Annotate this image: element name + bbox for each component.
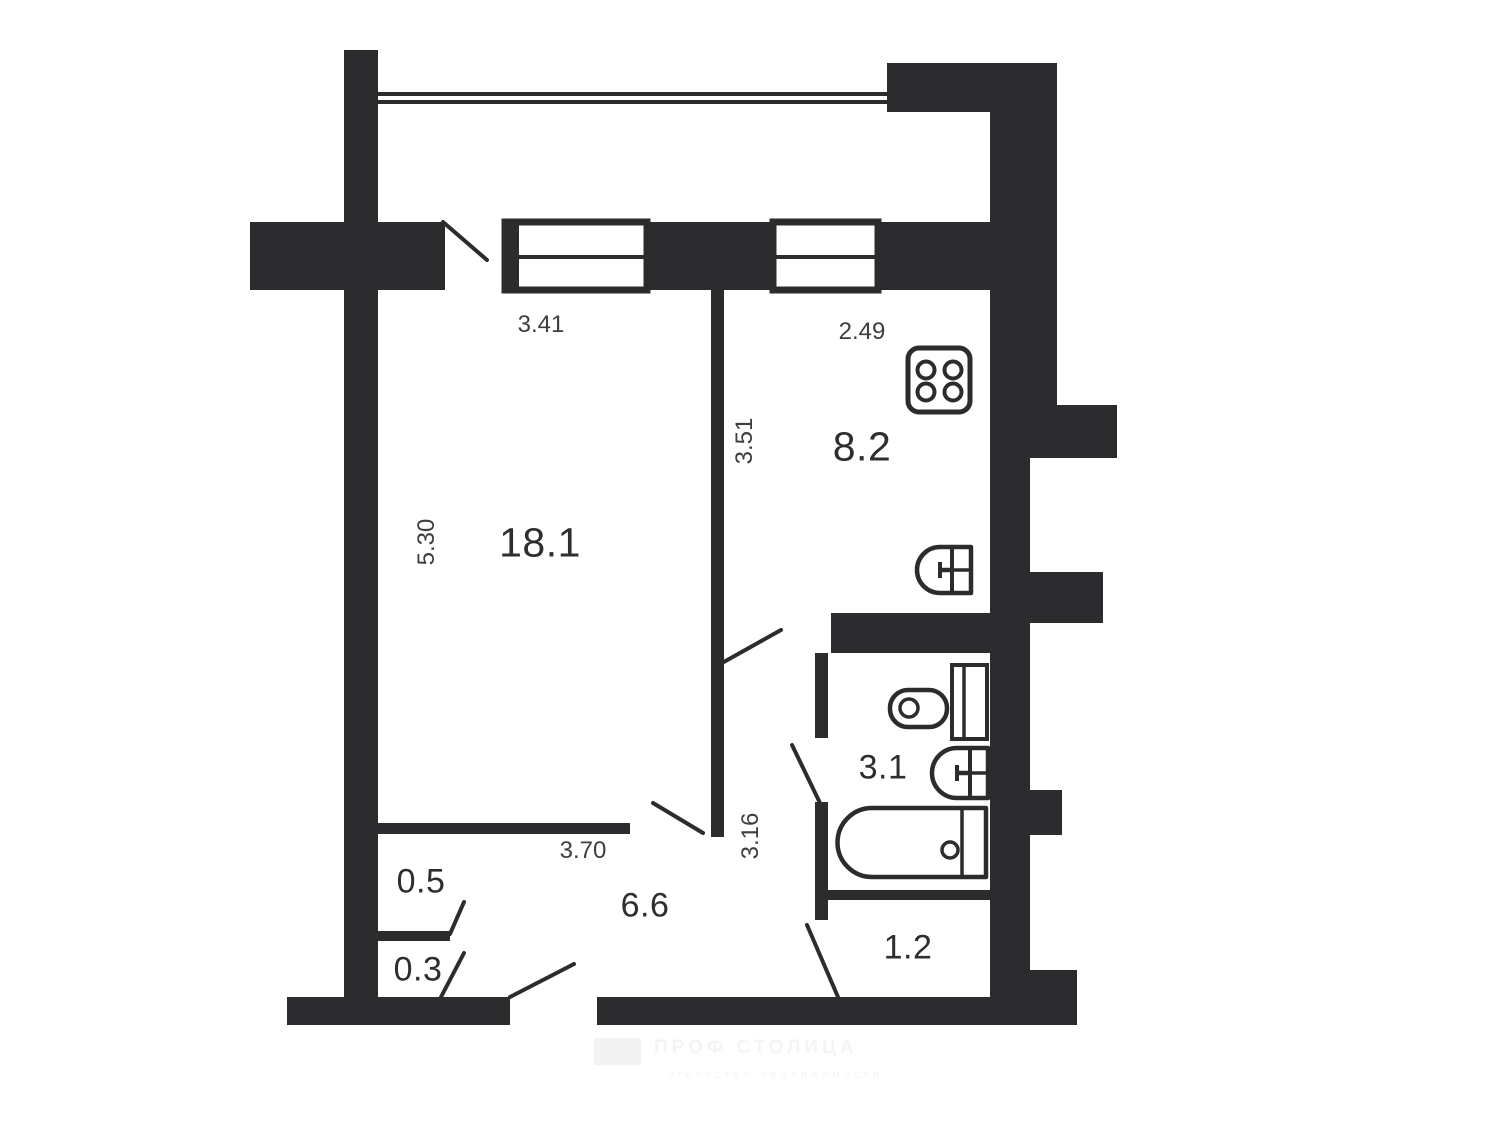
toilet-icon bbox=[890, 690, 947, 727]
cistern-icon bbox=[952, 665, 987, 739]
wall-segment bbox=[831, 613, 990, 653]
wall-segment bbox=[377, 823, 630, 834]
watermark: ПРОФ СТОЛИЦА агентство недвижимости bbox=[594, 1033, 1014, 1093]
door-leaf-entrance bbox=[510, 964, 574, 997]
wall-segment bbox=[825, 890, 990, 900]
window-kitchen-icon bbox=[773, 222, 878, 290]
wall-segment bbox=[990, 405, 1117, 458]
watermark-title: ПРОФ СТОЛИЦА bbox=[654, 1037, 858, 1059]
door-leaf-kitchen bbox=[722, 630, 781, 663]
balcony-rail-line bbox=[378, 100, 887, 104]
wall-segment bbox=[815, 653, 828, 738]
wall-segment bbox=[990, 623, 1030, 790]
wall-segment bbox=[647, 222, 773, 290]
wall-segment bbox=[990, 112, 1057, 405]
wall-segment bbox=[377, 931, 450, 941]
door-leaf-living-room bbox=[653, 803, 703, 833]
bathroom-sink-icon bbox=[932, 748, 988, 798]
stove-icon bbox=[908, 348, 970, 412]
door-leaf-entry bbox=[807, 925, 838, 997]
wall-segment bbox=[887, 63, 1057, 112]
balcony-rail-line bbox=[378, 92, 887, 96]
door-leaf-bathroom bbox=[792, 745, 820, 803]
wall-segment bbox=[344, 50, 378, 1025]
wall-segment bbox=[878, 222, 990, 290]
watermark-subtitle: агентство недвижимости bbox=[668, 1069, 883, 1081]
floor-plan: 18.18.23.16.60.50.31.2 3.412.495.303.513… bbox=[0, 0, 1500, 1125]
wall-segment bbox=[990, 835, 1030, 970]
wall-segment bbox=[990, 572, 1103, 623]
wall-segment bbox=[990, 790, 1062, 835]
wall-segment bbox=[287, 997, 510, 1025]
wall-segment bbox=[990, 458, 1030, 572]
wall-segment bbox=[815, 802, 828, 920]
wall-segment bbox=[250, 222, 445, 290]
kitchen-sink-icon bbox=[917, 547, 971, 593]
window-living-room-icon bbox=[505, 222, 647, 290]
bathtub-icon bbox=[838, 808, 987, 877]
balcony-line bbox=[378, 92, 887, 104]
door-leaves bbox=[441, 222, 838, 997]
watermark-logo-icon bbox=[594, 1038, 641, 1065]
wall-segment bbox=[597, 997, 1077, 1025]
door-leaf-balcony bbox=[443, 222, 487, 260]
wall-segment bbox=[711, 288, 724, 837]
floor-plan-canvas bbox=[0, 0, 1500, 1125]
door-leaf-closet-upper bbox=[450, 902, 464, 934]
door-leaf-closet-lower bbox=[441, 953, 464, 997]
